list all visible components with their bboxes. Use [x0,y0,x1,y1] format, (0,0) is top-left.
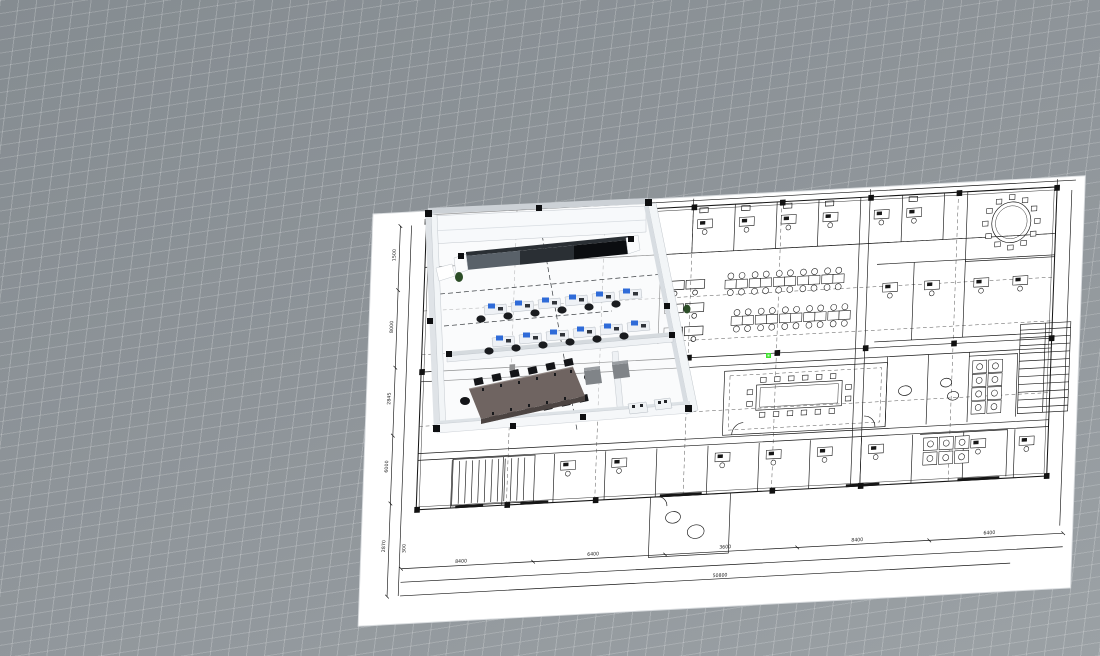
dimension-label: 6400 [983,530,995,537]
dimension-label: 8000 [389,321,395,334]
snap-marker-icon [766,353,771,358]
dimension-label: 8400 [851,537,863,544]
dimension-label: 3600 [719,544,731,551]
dimension-label: 2870 [381,540,387,553]
dimension-label: 8400 [455,558,467,565]
dimension-label: 6400 [587,551,599,558]
room-3d-model[interactable] [425,198,698,433]
dimension-label: 2845 [386,392,392,405]
dimension-label: 50800 [713,572,728,579]
dimension-label: 1500 [392,249,398,262]
scene-canvas: 1500 8000 2845 6000 2870 8400 6400 3600 … [0,0,1100,656]
dimension-label: 300 [401,544,407,554]
dimension-label: 6000 [384,460,390,473]
viewport-grid[interactable]: 1500 8000 2845 6000 2870 8400 6400 3600 … [0,0,1100,656]
